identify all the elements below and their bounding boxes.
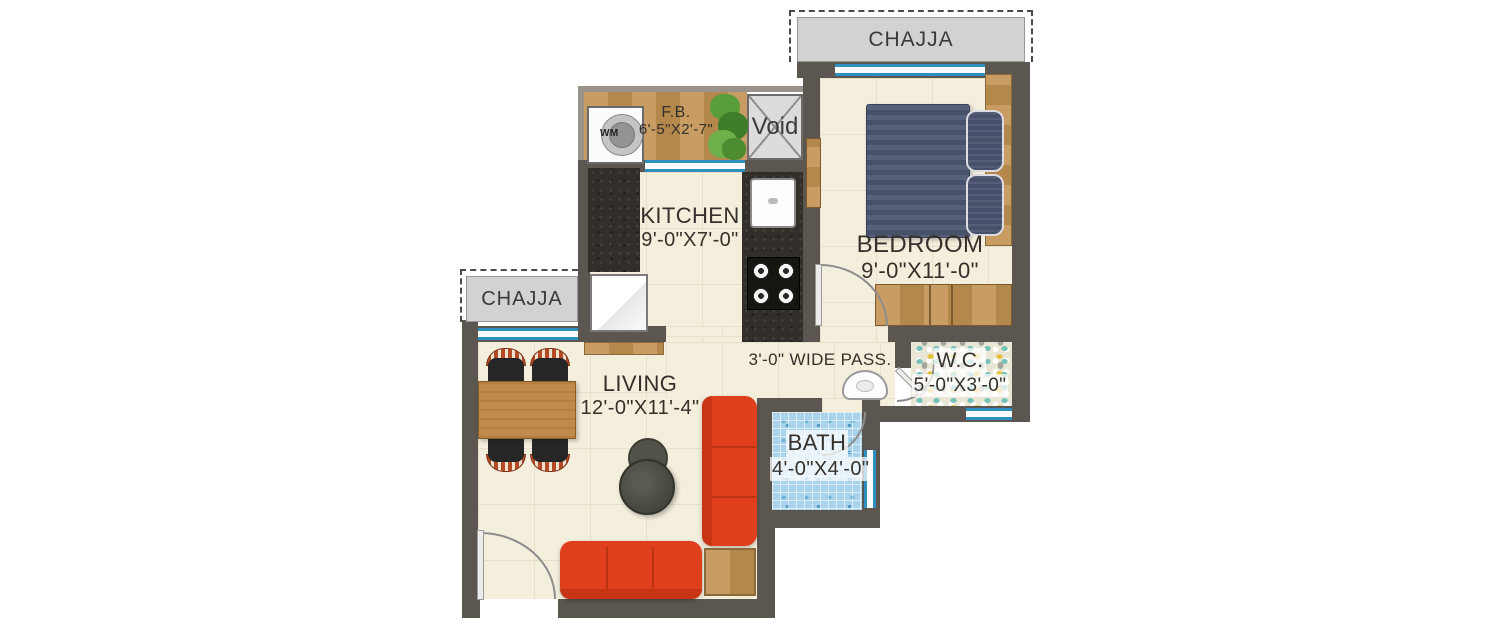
washbasin-bowl — [856, 380, 874, 392]
bedroom-door-leaf — [815, 264, 822, 326]
chajja-top: CHAJJA — [797, 17, 1025, 62]
floor-plan: WM Void F.B. 6'-5"X2'-7" CHAJJA CHAJJA — [0, 0, 1500, 625]
bedroom-label: BEDROOM 9'-0"X11'-0" — [830, 232, 1010, 284]
living-bottom-wall-left — [462, 599, 480, 618]
void-label: Void — [752, 113, 799, 141]
entrance-door-leaf — [477, 530, 484, 600]
bedroom-door-floor — [820, 326, 888, 342]
pillow-top — [966, 110, 1004, 172]
wardrobe-seam-1 — [929, 284, 931, 326]
kitchen-window — [645, 160, 745, 172]
sofa-horizontal-seam-1 — [606, 547, 608, 589]
living-label: LIVING 12'-0"X11'-4" — [540, 372, 740, 419]
wc-window — [966, 408, 1012, 420]
bedroom-bottom-wall-left — [803, 326, 820, 342]
chajja-top-label: CHAJJA — [868, 28, 953, 52]
stove — [747, 257, 800, 310]
sofa-horizontal-seam-2 — [652, 547, 654, 589]
bedroom-window — [835, 64, 985, 76]
kitchen-label: KITCHEN 9'-0"X7'-0" — [600, 204, 780, 251]
chajja-left: CHAJJA — [466, 276, 578, 322]
pillow-bottom — [966, 174, 1004, 236]
bedroom-tall-unit — [806, 138, 821, 208]
bedroom-right-wall — [1012, 62, 1030, 422]
void-bottom-wall — [745, 160, 803, 172]
coffee-table — [619, 459, 675, 515]
fb-label: F.B. 6'-5"X2'-7" — [606, 104, 746, 139]
sofa-vertical-seam-1 — [712, 446, 756, 448]
wardrobe-seam-2 — [951, 284, 953, 326]
bath-top-wall — [757, 398, 822, 412]
sofa-vertical-seam-2 — [712, 496, 756, 498]
passage-label: 3'-0" WIDE PASS. — [730, 350, 910, 369]
kitchen-cabinet-ledge — [584, 342, 664, 355]
chajja-left-label: CHAJJA — [481, 288, 563, 311]
bedroom-bottom-wall-right — [888, 326, 1012, 342]
side-table — [704, 548, 756, 596]
void-area: Void — [747, 94, 803, 160]
bath-label: BATH 4'-0"X4'-0" — [770, 430, 864, 481]
bath-bottom-wall — [757, 510, 880, 528]
sofa-horizontal-backrest — [560, 589, 702, 599]
bath-door-floor — [822, 398, 862, 412]
fridge — [590, 274, 648, 332]
living-left-wall — [462, 320, 478, 618]
wc-label: W.C. 5'-0"X3'-0" — [908, 348, 1012, 397]
living-window — [478, 328, 578, 340]
bed — [866, 104, 970, 238]
wardrobe — [875, 284, 1012, 326]
living-bottom-wall-main — [558, 599, 775, 618]
